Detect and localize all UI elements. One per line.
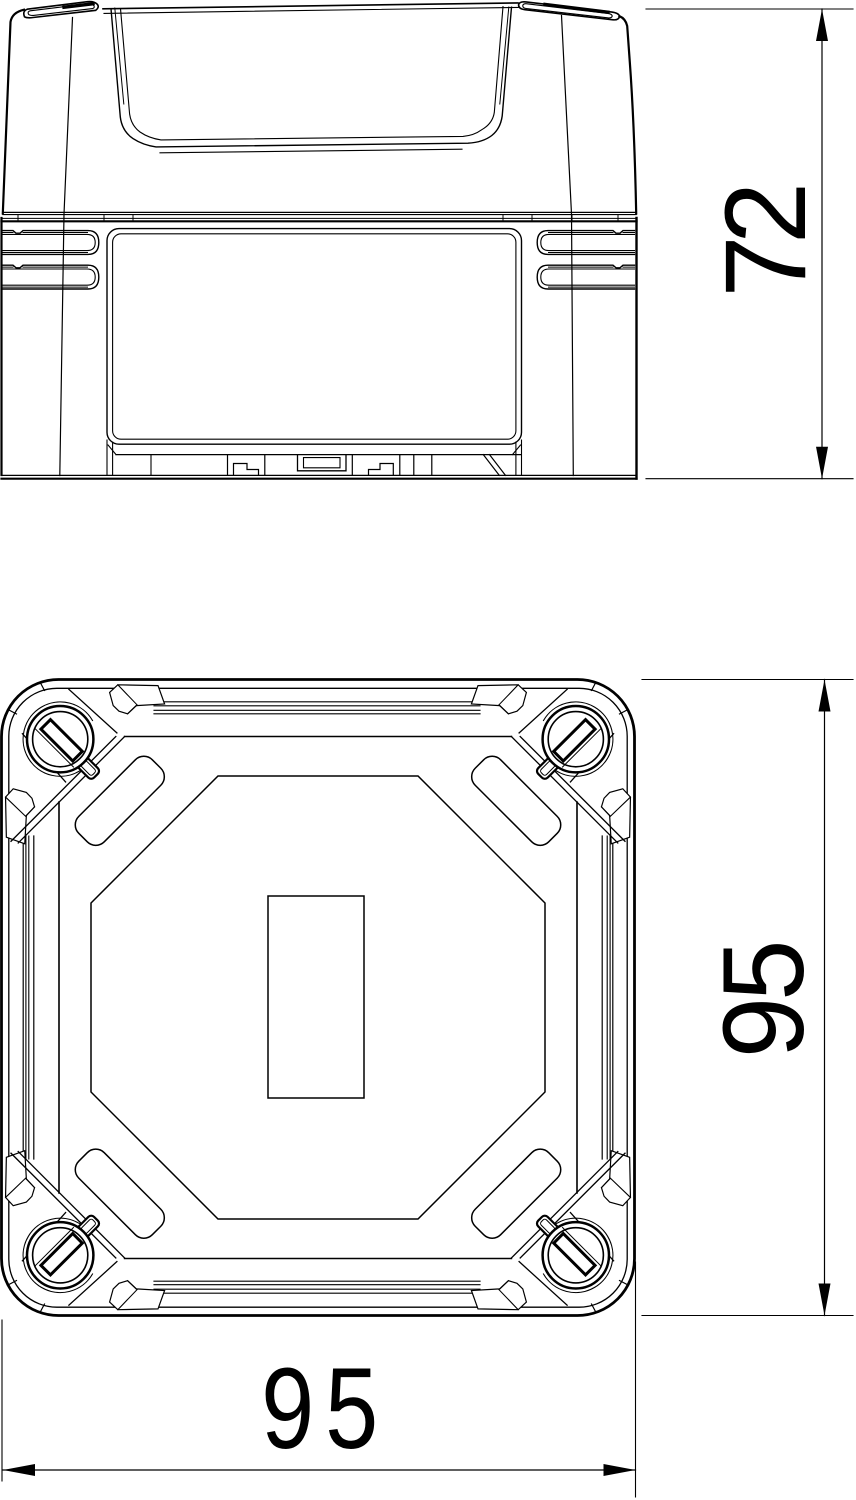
svg-text:9: 9 [261, 1344, 314, 1472]
svg-text:2: 2 [701, 182, 830, 244]
svg-text:9: 9 [699, 997, 828, 1058]
svg-text:5: 5 [325, 1344, 378, 1472]
svg-text:5: 5 [699, 939, 828, 1000]
